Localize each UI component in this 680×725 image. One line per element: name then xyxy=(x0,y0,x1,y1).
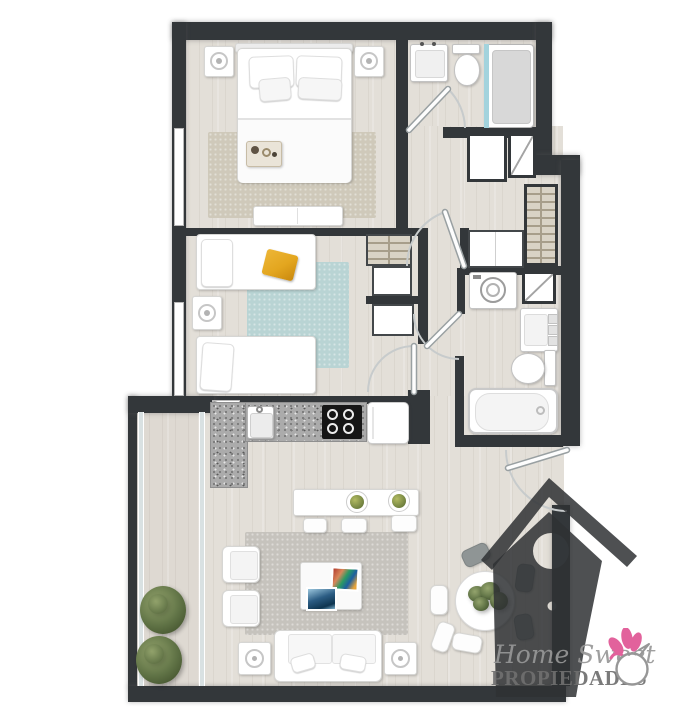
closet-entry-a xyxy=(467,133,507,182)
toilet-bath2-bowl xyxy=(511,353,545,384)
cabinet-entry-divider xyxy=(495,232,496,266)
bird-body-icon xyxy=(617,654,648,685)
pillow-twin-bottom xyxy=(199,342,234,392)
closet-bath2 xyxy=(522,271,556,304)
dining-centerpiece-plant3 xyxy=(490,592,508,610)
toilet-bath2-tank xyxy=(544,350,556,386)
kitchen-sink-basin xyxy=(250,413,273,438)
wardrobe-rod-icon xyxy=(540,187,542,263)
coffee-table-book-blue xyxy=(306,587,337,611)
closet-bed2-rod-icon xyxy=(388,236,390,264)
side-table-right-dot-icon xyxy=(398,656,403,661)
closet-bed2-box xyxy=(372,266,412,296)
armchair-2-seat xyxy=(230,595,258,624)
pillow-master-4 xyxy=(297,77,342,101)
burner-icon-2 xyxy=(343,409,354,420)
floorplan-canvas: Home Sweet PROPIEDADES xyxy=(0,0,680,725)
fridge-handle-icon xyxy=(372,407,374,439)
toilet-ensuite-bowl xyxy=(454,54,480,86)
tray-item-small-icon xyxy=(272,152,277,157)
shower-tray xyxy=(492,50,531,124)
wall-bath2-bottom xyxy=(455,435,563,447)
lamp-left-dot-icon xyxy=(216,58,222,64)
wall-balcony-top xyxy=(128,396,214,413)
cabinet-bed2-lower xyxy=(372,304,414,336)
wall-bed2-right-mid xyxy=(418,302,428,344)
burner-icon-3 xyxy=(327,423,338,434)
side-table-left-dot-icon xyxy=(252,656,257,661)
plate-2-food xyxy=(392,494,406,508)
toilet-ensuite-tank xyxy=(452,44,480,54)
tray-item-ring-icon xyxy=(262,148,271,157)
tray-item-dark-icon xyxy=(251,146,259,154)
faucet-ensuite-icon2 xyxy=(432,42,436,46)
lamp-right-dot-icon xyxy=(366,58,372,64)
closet-entry-b xyxy=(508,133,536,178)
bathtub-drain-icon xyxy=(536,406,545,415)
vanity-bath2-drawer3 xyxy=(548,336,558,346)
dining-centerpiece-plant4 xyxy=(473,597,489,611)
burner-icon-1 xyxy=(327,409,338,420)
wall-right-mid xyxy=(561,160,580,446)
wall-bath2-left-upper xyxy=(457,268,465,314)
dresser-divider xyxy=(297,208,298,224)
washer-drum-inner-icon xyxy=(486,283,500,297)
wall-bed2-right-upper xyxy=(418,228,428,302)
kitchen-faucet-icon xyxy=(256,406,263,413)
plate-1-food xyxy=(350,495,364,509)
lamp-twin-dot-icon xyxy=(204,310,210,316)
wall-top xyxy=(172,22,552,40)
pillow-twin-top xyxy=(201,239,233,287)
wall-master-right xyxy=(396,40,408,230)
pillow-master-3 xyxy=(258,77,292,103)
bird-beak-icon xyxy=(639,644,649,655)
armchair-1-seat xyxy=(230,551,258,580)
balcony-plant-2b xyxy=(144,644,164,664)
vanity-bath2-drawer2 xyxy=(548,325,558,335)
stool-3 xyxy=(391,515,417,532)
wall-bed2-stub xyxy=(366,296,418,304)
brand-bird-icon xyxy=(603,628,673,690)
vanity-bath2-basin xyxy=(524,314,548,346)
wall-kitchen-right xyxy=(408,390,430,444)
dresser-master xyxy=(253,206,343,226)
wall-balcony-left xyxy=(128,396,137,688)
shower-glass-icon xyxy=(484,44,489,128)
window-bedroom2-icon xyxy=(174,302,184,396)
burner-icon-4 xyxy=(343,423,354,434)
dining-chair-left xyxy=(430,585,448,615)
balcony-plant-1b xyxy=(148,594,168,614)
vanity-bath2-drawer1 xyxy=(548,314,558,324)
wall-bath2-left-lower xyxy=(455,356,464,446)
stool-1 xyxy=(303,518,327,533)
stool-2 xyxy=(341,518,367,533)
faucet-ensuite-icon xyxy=(420,42,424,46)
window-master-icon xyxy=(174,128,184,226)
cabinet-entry xyxy=(468,230,524,268)
washer-slot-icon xyxy=(473,275,481,279)
balcony-glass-partition xyxy=(199,412,205,686)
vanity-ensuite-basin xyxy=(415,50,445,78)
wall-right-upper xyxy=(536,22,552,162)
counter-left xyxy=(210,402,248,488)
